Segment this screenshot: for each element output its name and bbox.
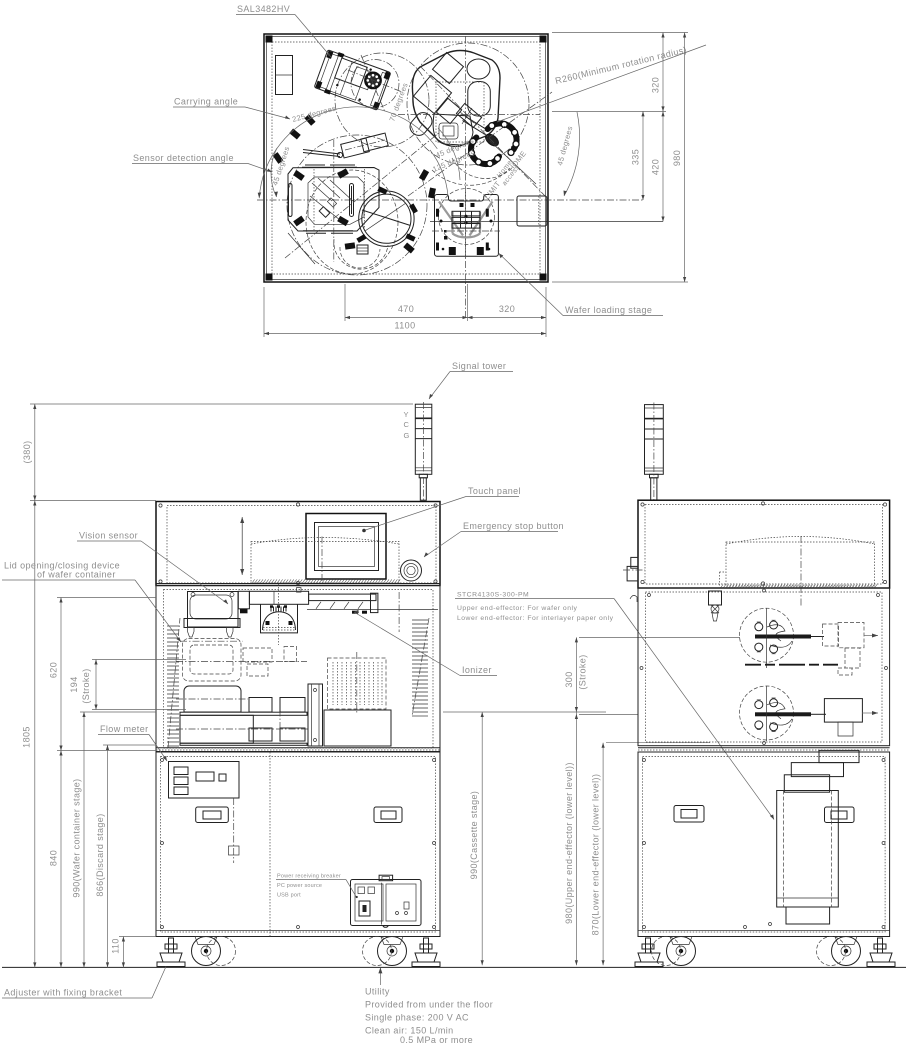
- svg-text:Power receiving breaker: Power receiving breaker: [277, 874, 341, 880]
- svg-text:PC power source: PC power source: [277, 883, 322, 889]
- svg-text:840: 840: [49, 850, 59, 866]
- svg-text:Y: Y: [404, 410, 409, 419]
- svg-text:(380): (380): [22, 440, 32, 463]
- svg-text:620: 620: [49, 662, 59, 678]
- svg-text:G: G: [404, 431, 410, 440]
- svg-text:Ionizer: Ionizer: [462, 665, 492, 675]
- svg-text:335: 335: [631, 149, 641, 165]
- svg-text:USB port: USB port: [277, 893, 301, 899]
- svg-text:Sensor detection angle: Sensor detection angle: [133, 153, 234, 163]
- svg-text:0.5 MPa or more: 0.5 MPa or more: [400, 1035, 473, 1045]
- svg-text:SAL3482HV: SAL3482HV: [237, 4, 290, 14]
- svg-text:Provided from under the floor: Provided from under the floor: [365, 1000, 493, 1010]
- svg-text:Clean air: 150 L/min: Clean air: 150 L/min: [365, 1026, 454, 1036]
- svg-text:C: C: [404, 420, 410, 429]
- svg-text:Adjuster with fixing bracket: Adjuster with fixing bracket: [4, 988, 122, 998]
- svg-text:980: 980: [672, 150, 682, 166]
- svg-text:Vision sensor: Vision sensor: [79, 531, 138, 541]
- svg-text:1805: 1805: [22, 726, 32, 748]
- svg-text:Lower end-effector: For interl: Lower end-effector: For interlayer paper…: [457, 615, 614, 622]
- svg-text:Emergency stop button: Emergency stop button: [463, 521, 564, 531]
- svg-text:(Stroke): (Stroke): [81, 668, 91, 703]
- svg-text:470: 470: [398, 304, 414, 314]
- svg-text:(Stroke): (Stroke): [578, 654, 588, 689]
- svg-text:110: 110: [111, 938, 121, 954]
- svg-text:Utility: Utility: [365, 987, 390, 997]
- svg-text:Carrying angle: Carrying angle: [174, 97, 238, 107]
- svg-text:Signal tower: Signal tower: [452, 361, 506, 371]
- svg-text:980(Upper end-effector (lower: 980(Upper end-effector (lower level)): [564, 762, 574, 924]
- svg-text:Touch panel: Touch panel: [468, 486, 521, 496]
- svg-text:990(Cassette stage): 990(Cassette stage): [469, 791, 479, 880]
- svg-text:STCR4130S-300-PM: STCR4130S-300-PM: [457, 592, 529, 599]
- svg-text:of wafer container: of wafer container: [37, 570, 116, 580]
- svg-text:1100: 1100: [395, 321, 416, 331]
- svg-text:320: 320: [499, 304, 515, 314]
- svg-text:420: 420: [651, 159, 661, 175]
- svg-text:Single phase: 200 V AC: Single phase: 200 V AC: [365, 1013, 469, 1023]
- svg-text:Upper end-effector: For wafer: Upper end-effector: For wafer only: [457, 605, 577, 612]
- svg-text:194: 194: [69, 676, 79, 692]
- svg-text:870(Lower end-effector (lower: 870(Lower end-effector (lower level)): [591, 774, 601, 936]
- svg-text:320: 320: [651, 77, 661, 93]
- svg-text:Wafer loading stage: Wafer loading stage: [565, 305, 652, 315]
- svg-text:990(Wafer container stage): 990(Wafer container stage): [72, 778, 82, 897]
- svg-text:300: 300: [564, 671, 574, 687]
- svg-text:Flow meter: Flow meter: [100, 724, 149, 734]
- svg-text:866(Discard stage): 866(Discard stage): [95, 813, 105, 896]
